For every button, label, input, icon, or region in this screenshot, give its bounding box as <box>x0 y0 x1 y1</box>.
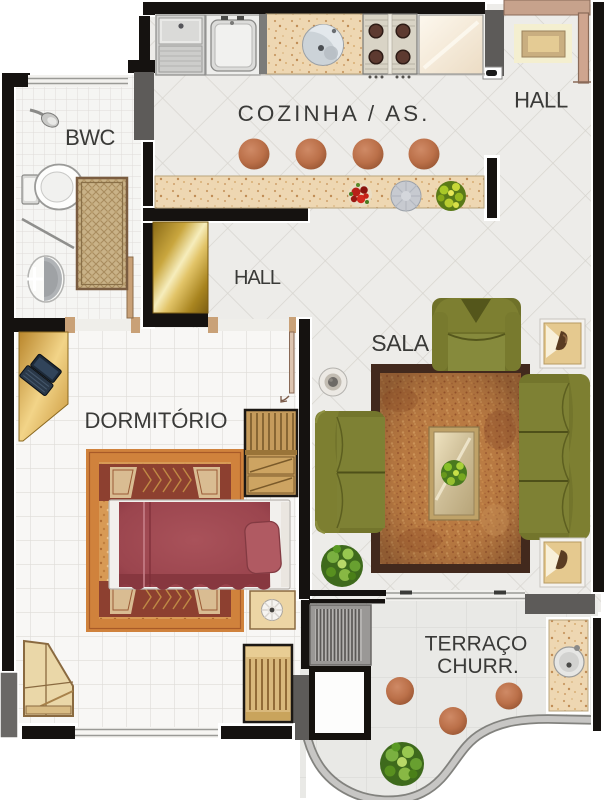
svg-text:TERRAÇO: TERRAÇO <box>425 633 528 656</box>
svg-text:SALA: SALA <box>371 330 430 356</box>
svg-text:DORMITÓRIO: DORMITÓRIO <box>85 408 228 433</box>
svg-text:CHURR.: CHURR. <box>437 655 519 678</box>
svg-text:COZINHA / AS.: COZINHA / AS. <box>238 101 431 126</box>
svg-text:HALL: HALL <box>234 267 281 289</box>
svg-text:BWC: BWC <box>65 125 115 150</box>
svg-text:HALL: HALL <box>514 88 568 113</box>
